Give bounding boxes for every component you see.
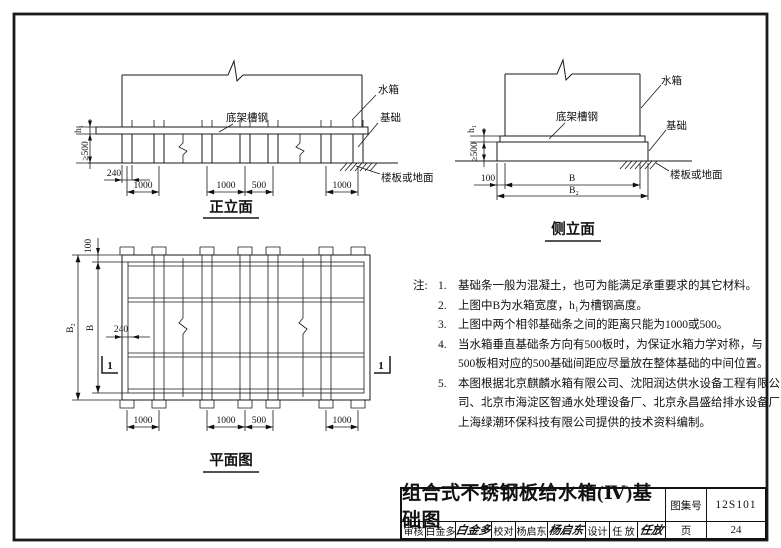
note-number: 2. <box>438 297 458 317</box>
front-dim-1000b: 1000 <box>217 181 236 191</box>
note-number: 5. <box>438 375 458 395</box>
notes-prefix: 注: <box>413 277 438 297</box>
front-label-foundation: 基础 <box>380 111 401 124</box>
note-line: 司、北京市海淀区智通水处理设备厂、北京永昌盛给排水设备厂、 <box>413 394 765 414</box>
plan-section-label-right: 1 <box>378 360 384 372</box>
plan-dim-B: B <box>86 325 96 331</box>
front-dim-240: 240 <box>107 169 122 179</box>
designer-signature: 任放 <box>639 522 665 538</box>
side-label-tank: 水箱 <box>661 74 682 87</box>
side-label-ground: 楼板或地面 <box>670 168 723 181</box>
side-channel-steel <box>500 136 645 142</box>
plan-break-lines <box>179 258 307 397</box>
note-number: 4. <box>438 336 458 356</box>
front-label-tank: 水箱 <box>378 83 399 96</box>
check-label: 校对 <box>492 522 516 538</box>
plan-outer-rect <box>122 255 370 400</box>
checker-name: 杨启东 <box>516 522 548 538</box>
note-text: 司、北京市海淀区智通水处理设备厂、北京永昌盛给排水设备厂、 <box>458 394 781 414</box>
plan-left-extension-lines <box>72 238 128 400</box>
note-line: 3. 上图中两个相邻基础条之间的距离只能为1000或500。 <box>413 316 765 336</box>
note-text: 基础条一般为混凝土，也可为能满足承重要求的其它材料。 <box>458 277 765 297</box>
side-tank-outline <box>505 60 640 136</box>
drawing-canvas: h₁ ≥500 240 1000 1000 500 1000 水箱 基础 楼板或… <box>0 0 781 548</box>
front-dim-h1: h₁ <box>74 125 84 133</box>
side-dim-min500: ≥500 <box>470 142 480 162</box>
side-view-title: 侧立面 <box>551 220 595 238</box>
note-text: 上海绿潮环保科技有限公司提供的技术资料编制。 <box>458 414 765 434</box>
note-text: 当水箱垂直基础条方向有500板时，为保证水箱力学对称，与 <box>458 336 765 356</box>
side-foundation-block <box>497 142 648 161</box>
front-label-ground: 楼板或地面 <box>381 171 434 184</box>
note-line: 2. 上图中B为水箱宽度，h₁为槽钢高度。 <box>413 297 765 317</box>
plan-view: 1 1 B₂ B 100 240 1000 1000 500 1000 平面图 <box>66 238 390 472</box>
note-line: 上海绿潮环保科技有限公司提供的技术资料编制。 <box>413 414 765 434</box>
plan-dim-1000b: 1000 <box>217 416 236 426</box>
reviewer-signature: 白金多 <box>456 522 492 538</box>
side-leader-lines <box>549 85 669 171</box>
side-label-channel: 底架槽钢 <box>556 110 598 123</box>
reviewer-name: 白金多 <box>426 522 456 538</box>
title-block: 组合式不锈钢板给水箱(Ⅳ)基础图 图集号 12S101 审核 白金多 白金多 校… <box>400 487 767 540</box>
atlas-number-value: 12S101 <box>707 489 765 521</box>
notes-section: 注: 1. 基础条一般为混凝土，也可为能满足承重要求的其它材料。 2. 上图中B… <box>413 277 765 433</box>
note-text: 本图根据北京麒麟水箱有限公司、沈阳润达供水设备工程有限公 <box>458 375 780 395</box>
plan-view-title: 平面图 <box>209 452 253 469</box>
front-view-title: 正立面 <box>209 198 253 216</box>
note-line: 4. 当水箱垂直基础条方向有500板时，为保证水箱力学对称，与 <box>413 336 765 356</box>
front-elevation-view: h₁ ≥500 240 1000 1000 500 1000 水箱 基础 楼板或… <box>74 61 434 218</box>
side-left-dim-arrows <box>482 130 486 162</box>
plan-horizontal-members <box>128 266 364 389</box>
plan-dim-1000c: 1000 <box>333 416 352 426</box>
review-label: 审核 <box>402 522 426 538</box>
front-dim-min500: ≥500 <box>81 141 91 161</box>
front-foundation-strips <box>122 134 363 163</box>
drawing-title: 组合式不锈钢板给水箱(Ⅳ)基础图 <box>402 489 666 521</box>
front-channel-steel <box>96 127 368 134</box>
note-text: 上图中B为水箱宽度，h₁为槽钢高度。 <box>458 297 765 317</box>
front-break-lines <box>179 134 304 163</box>
note-line: 500板相对应的500基础间距应尽量放在整体基础的中间位置。 <box>413 355 765 375</box>
side-dim-h1: h₁ <box>467 125 477 133</box>
plan-dim-100: 100 <box>84 239 94 254</box>
plan-dim-B2: B₂ <box>66 323 76 333</box>
side-elevation-view: h₁ ≥500 100 B B₂ 水箱 底架槽钢 基础 楼板或地面 侧立面 <box>455 60 723 241</box>
plan-dim-1000a: 1000 <box>134 416 153 426</box>
atlas-number-label: 图集号 <box>666 489 707 521</box>
side-bottom-extension-lines <box>474 163 648 200</box>
plan-100-arrow <box>96 248 100 255</box>
design-label: 设计 <box>586 522 610 538</box>
designer-name: 任 放 <box>610 522 638 538</box>
side-ground-hatch <box>620 161 657 169</box>
side-label-foundation: 基础 <box>666 119 687 132</box>
plan-dim-500: 500 <box>252 416 267 426</box>
plan-inner-rect <box>128 262 364 393</box>
note-number: 1. <box>438 277 458 297</box>
note-line: 5. 本图根据北京麒麟水箱有限公司、沈阳润达供水设备工程有限公 <box>413 375 765 395</box>
note-text: 500板相对应的500基础间距应尽量放在整体基础的中间位置。 <box>458 355 769 375</box>
drawing-sheet: h₁ ≥500 240 1000 1000 500 1000 水箱 基础 楼板或… <box>0 0 781 548</box>
checker-signature: 杨启东 <box>548 522 585 538</box>
note-text: 上图中两个相邻基础条之间的距离只能为1000或500。 <box>458 316 765 336</box>
plan-top-tabs <box>120 247 365 255</box>
side-dim-B2: B₂ <box>569 186 579 196</box>
plan-bottom-tabs <box>120 400 365 408</box>
front-label-channel: 底架槽钢 <box>226 111 268 124</box>
front-dim-1000c: 1000 <box>333 181 352 191</box>
front-bottom-extension-lines <box>127 166 358 196</box>
note-number: 3. <box>438 316 458 336</box>
page-label: 页 <box>666 521 707 538</box>
plan-bottom-extension-lines <box>127 410 358 431</box>
page-number: 24 <box>707 521 765 538</box>
plan-section-label-left: 1 <box>107 360 113 372</box>
title-block-signature-row: 审核 白金多 白金多 校对 杨启东 杨启东 设计 任 放 任放 <box>402 521 666 538</box>
plan-dim-240: 240 <box>114 325 129 335</box>
side-dim-B: B <box>569 174 575 184</box>
side-dim-100: 100 <box>481 174 496 184</box>
front-dim-1000a: 1000 <box>134 181 153 191</box>
note-line: 注: 1. 基础条一般为混凝土，也可为能满足承重要求的其它材料。 <box>413 277 765 297</box>
front-dim-500: 500 <box>252 181 267 191</box>
